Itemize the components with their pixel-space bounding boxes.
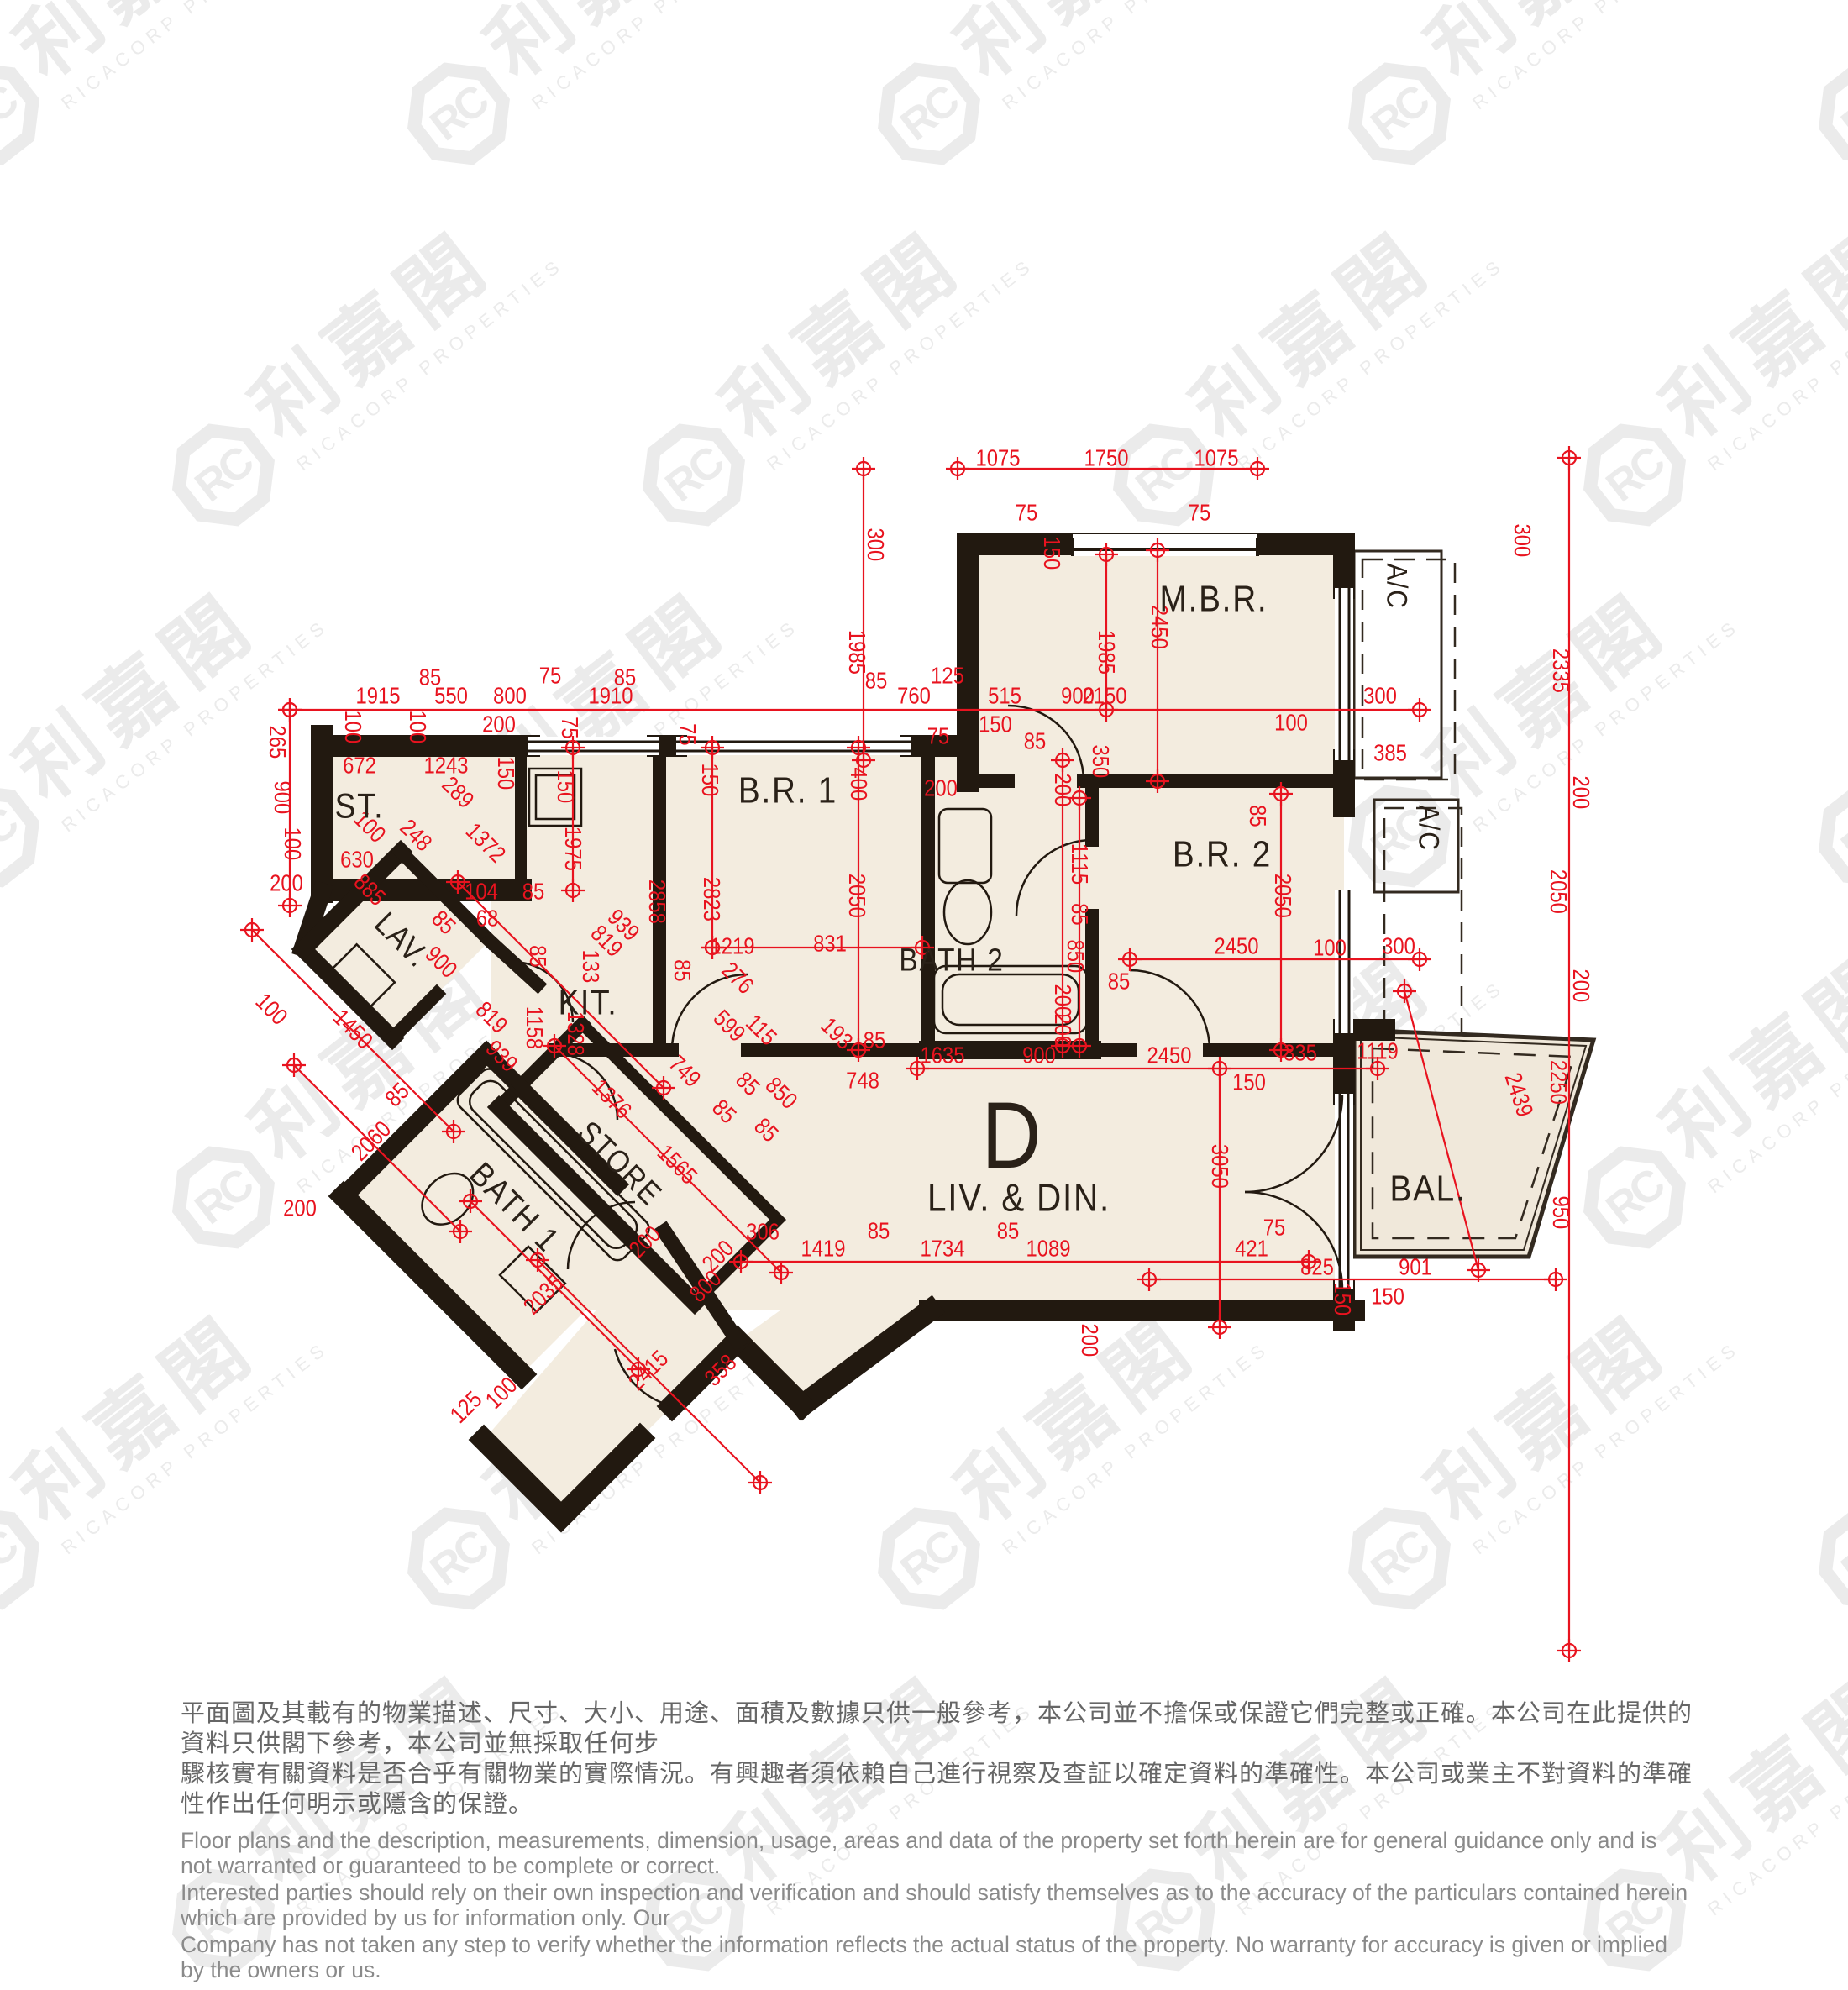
disclaimer-zh-line2: 驟核實有關資料是否合乎有關物業的實際情況。有興趣者須依賴自己進行視察及查証以確定…	[181, 1759, 1693, 1819]
disclaimer: 平面圖及其載有的物業描述、尺寸、大小、用途、面積及數據只供一般參考，本公司並不擔…	[181, 1699, 1693, 1982]
disclaimer-zh-line1: 平面圖及其載有的物業描述、尺寸、大小、用途、面積及數據只供一般參考，本公司並不擔…	[181, 1699, 1693, 1759]
floorplan-page: { "watermark": { "cjk": "利嘉閣", "latin": …	[0, 0, 1848, 1848]
disclaimer-en-line1: Floor plans and the description, measure…	[181, 1828, 1693, 1878]
floorplan-drawing	[0, 0, 1848, 1848]
disclaimer-en-line3: Company has not taken any step to verify…	[181, 1932, 1693, 1982]
disclaimer-en-line2: Interested parties should rely on their …	[181, 1880, 1693, 1930]
